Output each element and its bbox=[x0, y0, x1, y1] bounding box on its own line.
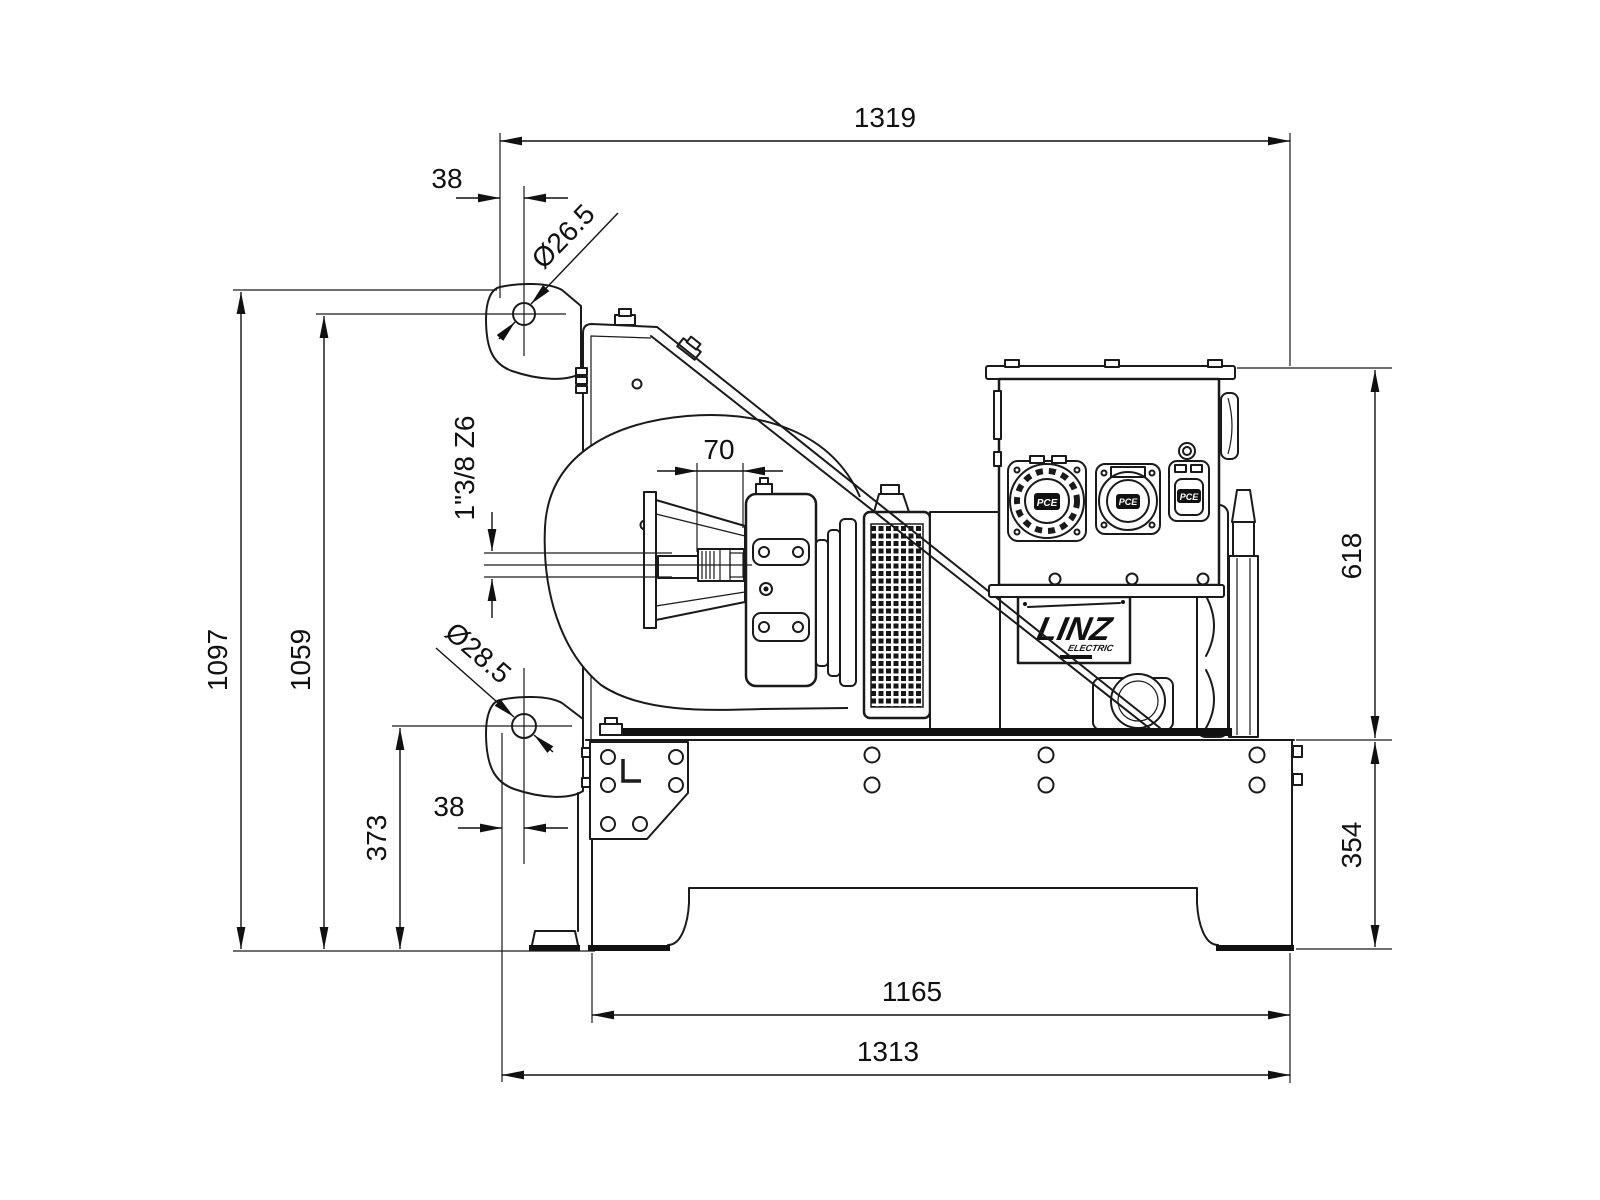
lifting-cone bbox=[1232, 490, 1255, 522]
coupling-discs bbox=[816, 519, 856, 686]
dim-bottom-hole-diameter-value: Ø28.5 bbox=[439, 616, 517, 689]
control-box: PCE PCE PCE bbox=[986, 360, 1238, 597]
dim-top-hole-diameter-value: Ø26.5 bbox=[526, 198, 601, 274]
lower-hitch-bracket bbox=[486, 697, 583, 797]
dim-pto-shaft-spec-value: 1"3/8 Z6 bbox=[449, 416, 480, 521]
dim-alternator-height: 618 bbox=[1237, 368, 1392, 740]
cooling-grille bbox=[864, 485, 930, 718]
generator-machine: LINZ ELECTRIC bbox=[486, 284, 1302, 948]
dim-frame-height-value: 354 bbox=[1336, 822, 1367, 869]
gearbox bbox=[746, 478, 816, 686]
dim-bottom-hole-offset-value: 38 bbox=[433, 791, 464, 822]
socket-medium-label: PCE bbox=[1119, 497, 1139, 507]
dim-skid-length: 1165 bbox=[592, 953, 1290, 1083]
dim-overall-length: 1319 bbox=[500, 102, 1290, 366]
brand-nameplate: LINZ ELECTRIC bbox=[1018, 597, 1130, 663]
socket-small-label: PCE bbox=[1180, 492, 1200, 502]
rail-bolt-holes bbox=[865, 748, 1265, 793]
dim-bottom-hole-height-value: 373 bbox=[361, 815, 392, 862]
brand-sub: ELECTRIC bbox=[1067, 643, 1114, 653]
dim-shaft-engagement-value: 70 bbox=[703, 434, 734, 465]
dimension-drawing: LINZ ELECTRIC bbox=[0, 0, 1600, 1200]
dim-overall-base-length-value: 1313 bbox=[857, 1036, 919, 1067]
dim-overall-length-value: 1319 bbox=[854, 102, 916, 133]
dim-top-hole-offset-value: 38 bbox=[431, 163, 462, 194]
dim-top-hole-height-value: 1059 bbox=[285, 629, 316, 691]
socket-small: PCE bbox=[1169, 461, 1209, 521]
socket-medium: PCE bbox=[1096, 464, 1160, 534]
dim-skid-length-value: 1165 bbox=[882, 976, 942, 1007]
mounting-plate bbox=[582, 718, 688, 839]
dim-overall-height: 1097 bbox=[202, 290, 595, 951]
gearbox-filler-plug bbox=[756, 484, 772, 494]
dim-overall-base-length: 1313 bbox=[502, 1036, 1290, 1075]
dim-overall-height-value: 1097 bbox=[202, 629, 233, 691]
base-frame bbox=[529, 718, 1302, 948]
dim-frame-height: 354 bbox=[1296, 742, 1392, 949]
socket-large: PCE bbox=[1008, 456, 1086, 541]
technical-drawing-page: LINZ ELECTRIC bbox=[0, 0, 1600, 1200]
upper-hitch-bracket bbox=[486, 284, 581, 379]
socket-large-label: PCE bbox=[1037, 498, 1058, 509]
dim-alternator-height-value: 618 bbox=[1336, 533, 1367, 580]
